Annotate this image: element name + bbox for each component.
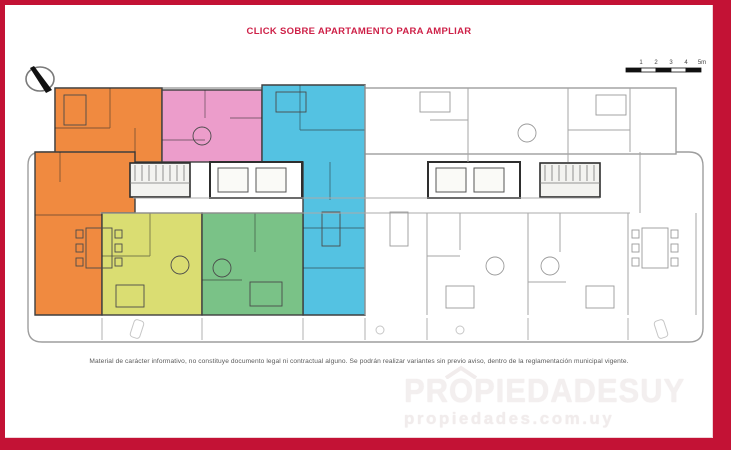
watermark: PROPIEDADESUY propiedades.com.uy — [404, 374, 703, 427]
apartment-pink[interactable] — [162, 90, 262, 162]
house-roof-icon — [444, 365, 478, 379]
elevator-core-left — [210, 162, 302, 198]
floorplan-page: CLICK SOBRE APARTAMENTO PARA AMPLIAR 1 2… — [0, 0, 731, 450]
svg-text:5m: 5m — [698, 60, 706, 66]
watermark-url: propiedades.com.uy — [404, 410, 703, 427]
svg-text:4: 4 — [684, 60, 688, 66]
frame-inner-hairline-bottom — [5, 437, 713, 438]
stair-core-right — [540, 163, 600, 197]
stair-core-left — [130, 163, 190, 197]
elevator-core-right — [428, 162, 520, 198]
north-arrow-icon — [26, 66, 54, 93]
legal-disclaimer: Material de carácter informativo, no con… — [5, 358, 713, 365]
svg-text:2: 2 — [654, 60, 658, 66]
page-title: CLICK SOBRE APARTAMENTO PARA AMPLIAR — [5, 26, 713, 37]
svg-text:3: 3 — [669, 60, 673, 66]
svg-text:1: 1 — [639, 60, 643, 66]
apartment-green[interactable] — [202, 213, 303, 315]
frame-inner-hairline-right — [712, 5, 713, 438]
apartment-yellow[interactable] — [102, 213, 202, 315]
scale-bar: 1 2 3 4 5m — [626, 60, 706, 72]
